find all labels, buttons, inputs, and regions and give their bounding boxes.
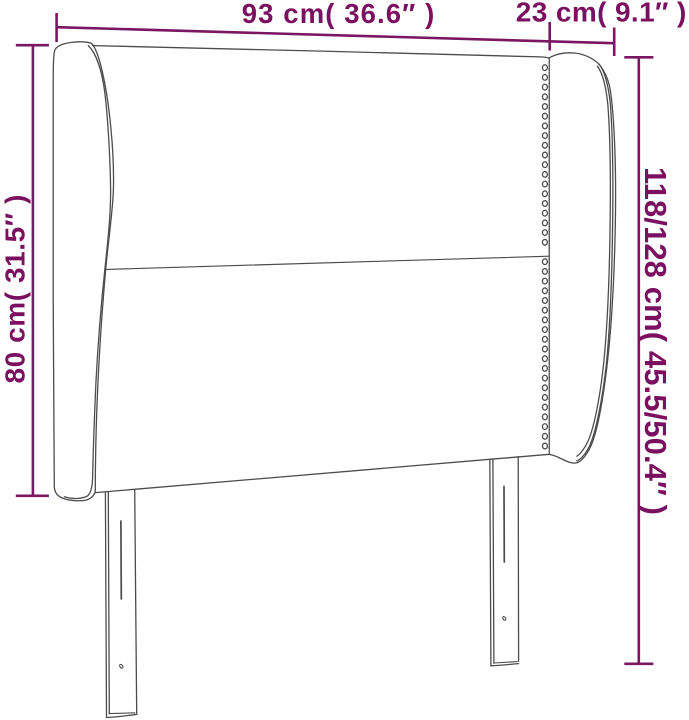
svg-text:23 cm( 9.1″ ): 23 cm( 9.1″ ) (516, 0, 687, 27)
svg-text:80 cm( 31.5″ ): 80 cm( 31.5″ ) (0, 195, 31, 384)
svg-text:93 cm( 36.6″ ): 93 cm( 36.6″ ) (242, 0, 434, 29)
svg-text:118/128 cm( 45.5/50.4″ ): 118/128 cm( 45.5/50.4″ ) (638, 167, 673, 515)
